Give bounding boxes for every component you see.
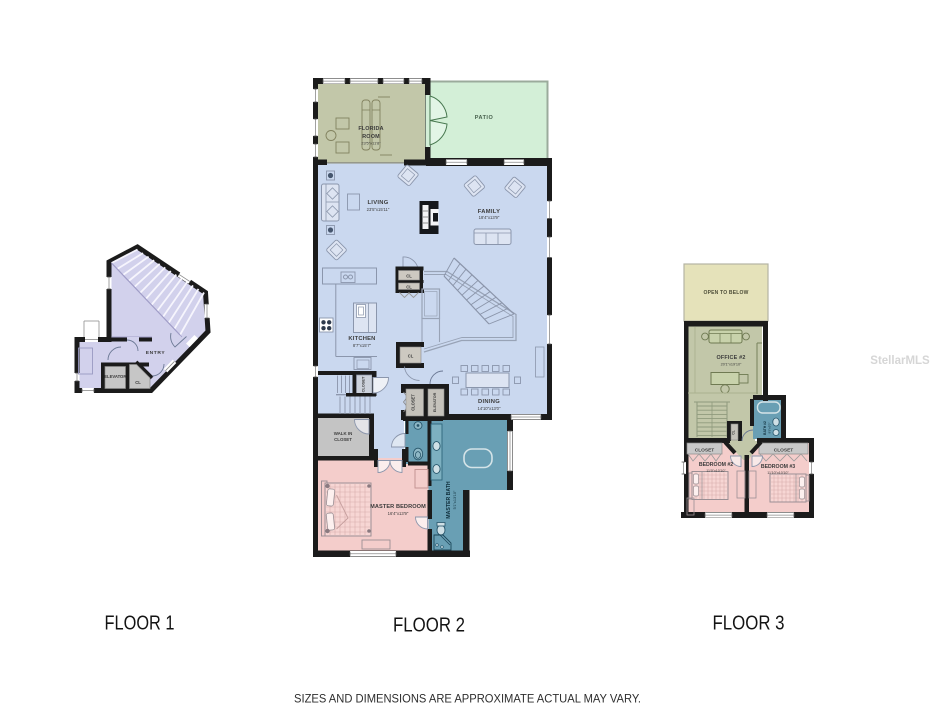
svg-text:BATH #2: BATH #2 bbox=[763, 421, 767, 435]
svg-text:BEDROOM #3: BEDROOM #3 bbox=[761, 464, 795, 470]
svg-text:ELEVATOR: ELEVATOR bbox=[433, 392, 437, 412]
svg-text:CL: CL bbox=[406, 285, 412, 290]
svg-text:CLOSET: CLOSET bbox=[334, 437, 352, 442]
svg-text:14'10"x13'0": 14'10"x13'0" bbox=[478, 406, 501, 411]
svg-text:MASTER BEDROOM: MASTER BEDROOM bbox=[370, 504, 426, 510]
svg-text:ROOM: ROOM bbox=[362, 134, 380, 140]
svg-text:CL: CL bbox=[406, 274, 412, 279]
svg-text:23'5"x11'8": 23'5"x11'8" bbox=[361, 141, 381, 146]
svg-text:CL: CL bbox=[408, 354, 414, 359]
svg-text:CLOSET: CLOSET bbox=[411, 394, 416, 411]
svg-text:SIZES AND DIMENSIONS ARE APPRO: SIZES AND DIMENSIONS ARE APPROXIMATE ACT… bbox=[294, 692, 641, 706]
svg-text:FLOOR 2: FLOOR 2 bbox=[393, 614, 465, 637]
svg-text:CLOSET: CLOSET bbox=[774, 448, 794, 454]
svg-text:CLOSET: CLOSET bbox=[361, 376, 366, 392]
svg-text:23'5"x15'11": 23'5"x15'11" bbox=[367, 207, 390, 212]
svg-text:20'1"x19'10": 20'1"x19'10" bbox=[721, 363, 742, 367]
svg-text:18'4"x13'9": 18'4"x13'9" bbox=[479, 215, 500, 220]
svg-text:8'7"x15'7": 8'7"x15'7" bbox=[353, 343, 372, 348]
svg-text:ELEVATOR: ELEVATOR bbox=[104, 374, 126, 379]
svg-text:BEDROOM #2: BEDROOM #2 bbox=[699, 462, 733, 468]
svg-text:MASTER BATH: MASTER BATH bbox=[446, 481, 452, 519]
svg-text:LIVING: LIVING bbox=[367, 200, 388, 206]
svg-text:WALK IN: WALK IN bbox=[334, 431, 353, 436]
svg-text:CL: CL bbox=[135, 380, 141, 385]
svg-text:11'10"x10'10": 11'10"x10'10" bbox=[767, 471, 789, 475]
svg-text:8'6"x5'0": 8'6"x5'0" bbox=[768, 423, 772, 434]
svg-text:ENTRY: ENTRY bbox=[146, 350, 166, 356]
svg-text:PATIO: PATIO bbox=[475, 115, 494, 121]
svg-text:DINING: DINING bbox=[478, 399, 500, 405]
svg-text:11'9"x10'10": 11'9"x10'10" bbox=[706, 469, 726, 473]
svg-text:FLORIDA: FLORIDA bbox=[358, 126, 383, 132]
svg-text:StellarMLS: StellarMLS bbox=[870, 355, 930, 367]
svg-text:16'4"x13'9": 16'4"x13'9" bbox=[388, 511, 409, 516]
svg-text:OFFICE #2: OFFICE #2 bbox=[716, 355, 745, 361]
svg-text:KITCHEN: KITCHEN bbox=[348, 336, 375, 342]
svg-text:FLOOR 3: FLOOR 3 bbox=[713, 612, 785, 635]
svg-text:CLOSET: CLOSET bbox=[695, 448, 715, 454]
svg-text:OPEN TO BELOW: OPEN TO BELOW bbox=[703, 290, 748, 296]
svg-text:CL: CL bbox=[732, 430, 736, 435]
svg-text:FLOOR 1: FLOOR 1 bbox=[105, 612, 175, 635]
svg-text:5'1"x13'10": 5'1"x13'10" bbox=[453, 490, 457, 509]
